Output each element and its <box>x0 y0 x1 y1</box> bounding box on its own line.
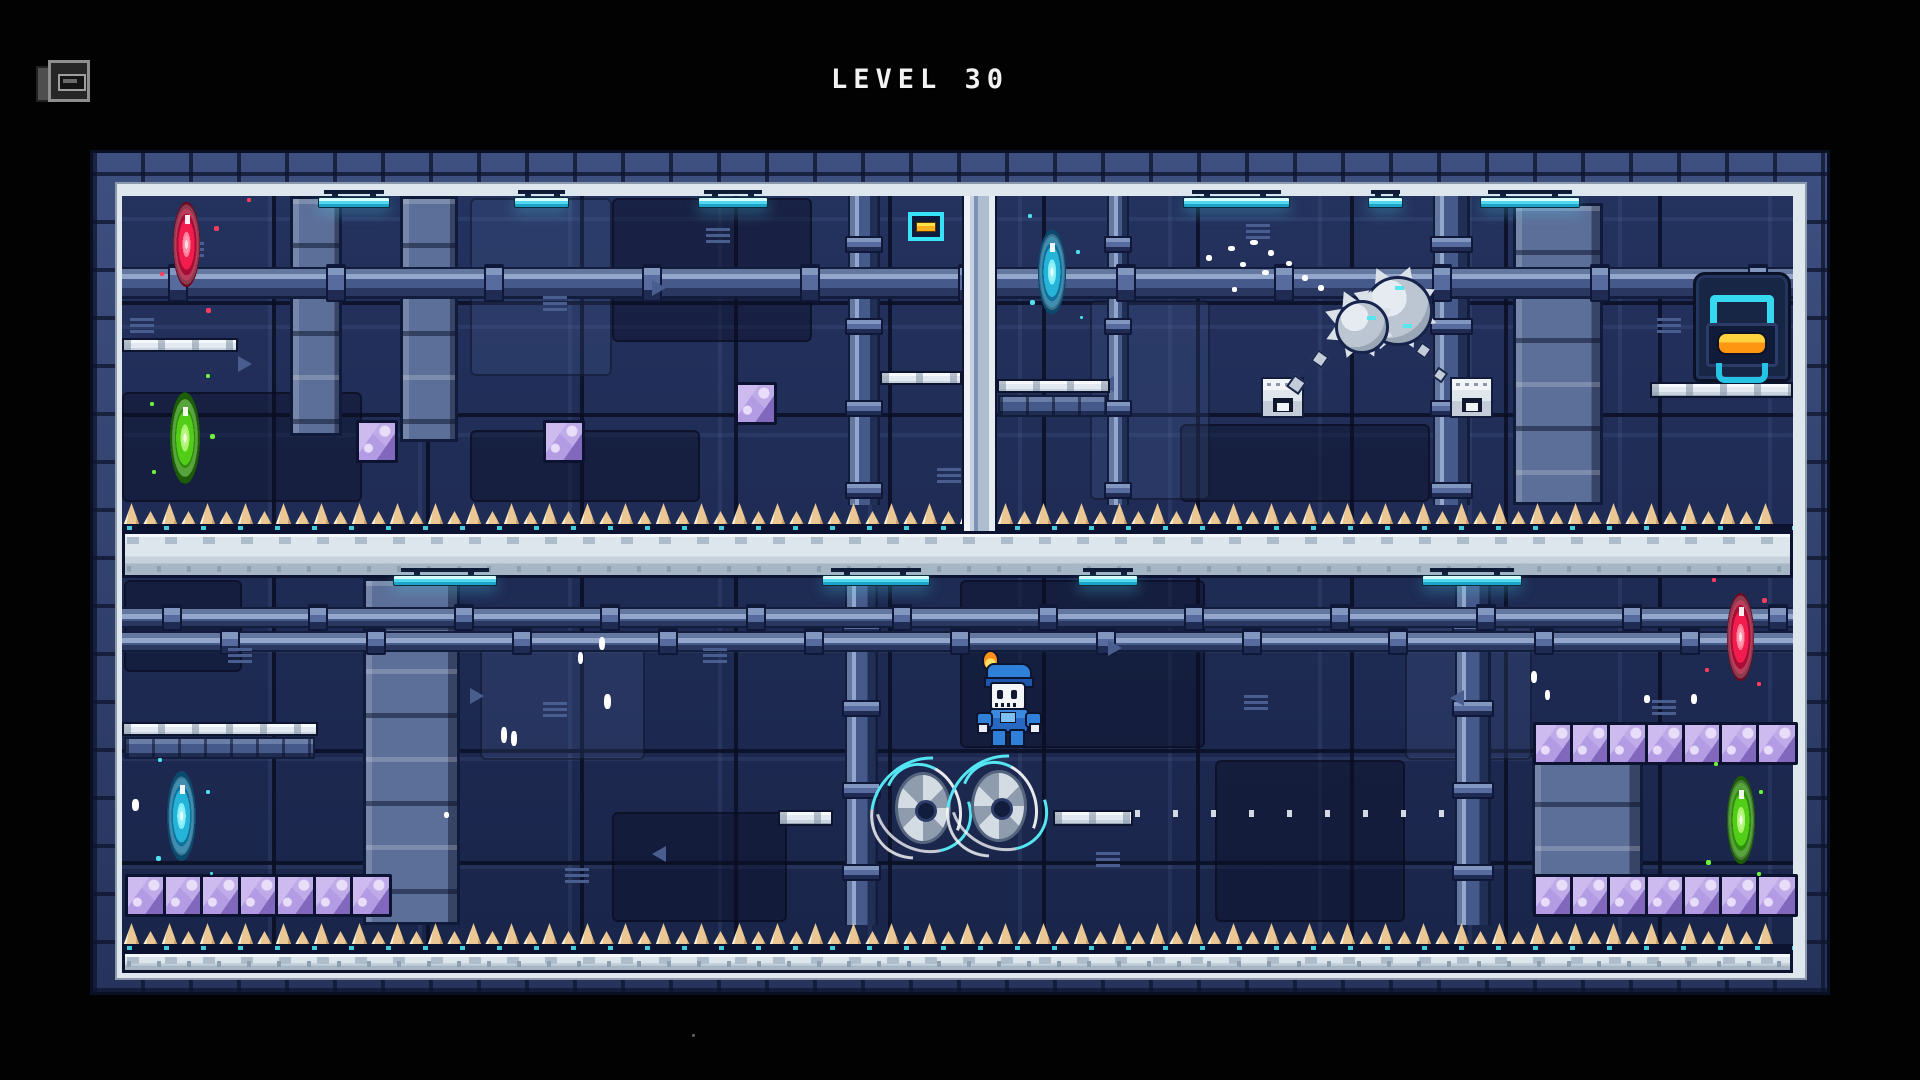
pipe-band <box>842 864 881 881</box>
lower-left-ledge <box>122 722 318 736</box>
wall-vent <box>1657 318 1681 333</box>
spark-cyan <box>1076 250 1080 254</box>
lamp-bar <box>318 197 390 208</box>
portal-cyan-lower-left <box>165 765 198 867</box>
spike-base <box>122 524 1793 531</box>
spark-cyan <box>156 856 161 861</box>
dust-particle <box>132 799 139 811</box>
player-eye <box>997 690 1003 699</box>
crystal-block <box>350 874 392 917</box>
saw-left-platform <box>778 810 833 826</box>
player-eye <box>1011 690 1017 699</box>
white-pole <box>962 196 997 531</box>
player-handr <box>1029 723 1041 734</box>
spark-green <box>1759 790 1763 794</box>
wall-vent <box>543 296 567 311</box>
crystal-block <box>1533 874 1575 917</box>
crystal-block <box>356 420 398 463</box>
crystal-block <box>1682 722 1724 765</box>
dust-particle <box>1691 694 1697 704</box>
beam-ticks <box>127 961 1788 967</box>
lamp-bar <box>822 575 930 586</box>
wall-vent <box>565 868 589 883</box>
pipe-band <box>845 236 883 253</box>
portal-red-upper-left <box>171 196 202 293</box>
spike-base <box>122 944 1793 951</box>
dust-particle <box>1240 262 1246 267</box>
spark-green <box>1757 872 1761 876</box>
lamp-bar <box>514 197 569 208</box>
dust-particle <box>604 694 611 709</box>
pipe-band <box>845 400 883 417</box>
pipe-band <box>1452 864 1494 881</box>
wall-vent <box>228 648 252 663</box>
wall-arrow <box>238 356 252 372</box>
pipe-joint <box>892 604 912 631</box>
ceiling-lamp <box>318 190 390 208</box>
divider-beam <box>122 531 1793 578</box>
spiked-ball <box>1333 276 1433 362</box>
pipe-joint <box>1330 604 1350 631</box>
dust-particle <box>1286 261 1292 266</box>
dust-particle <box>1228 246 1235 251</box>
pipe-joint <box>454 604 474 631</box>
crystal-block <box>1607 722 1649 765</box>
spike-base-dots <box>127 526 1793 530</box>
pipe-band <box>1104 482 1132 499</box>
portal-green-upper-left <box>168 386 202 490</box>
spark-green <box>1706 860 1711 865</box>
ceiling-lamp <box>1183 190 1290 208</box>
player-chest <box>1000 712 1016 723</box>
crystal-block <box>163 874 205 917</box>
spark-cyan <box>1028 214 1032 218</box>
crystal-block <box>1570 722 1612 765</box>
spark-red <box>1762 598 1767 603</box>
machine-cabinet <box>400 196 458 442</box>
pipe-band <box>842 700 881 717</box>
spark-green <box>150 402 154 406</box>
pipe-band <box>845 482 883 499</box>
spark-cyan <box>1030 300 1035 305</box>
beam-studs <box>127 537 1788 544</box>
pipe-band <box>1430 236 1473 253</box>
saw-blade-right <box>963 762 1035 850</box>
dispenser-slot-inner <box>1277 403 1289 411</box>
lower-room-floor-spikes <box>122 925 1793 951</box>
dispenser-lines <box>1456 383 1487 386</box>
pipe-band <box>1104 236 1132 253</box>
pipe-joint <box>326 264 346 302</box>
upper-room-floor-spikes <box>122 505 1793 531</box>
exit-door <box>1693 272 1791 382</box>
pipe-joint <box>1590 264 1610 302</box>
spark-cyan <box>158 758 162 762</box>
pole-right-ledge <box>997 379 1110 393</box>
wall-vent <box>1096 852 1120 867</box>
wall-panel-dark <box>1215 760 1405 922</box>
ceiling-lamp <box>698 190 768 208</box>
ceiling-lamp <box>822 568 930 586</box>
beam-ticks <box>127 566 1788 572</box>
pipe-joint <box>658 628 678 655</box>
pipe-joint <box>484 264 504 302</box>
pipe-band <box>1430 318 1473 335</box>
door-button <box>1717 332 1767 355</box>
portal-cyan-upper-middle <box>1036 224 1068 320</box>
pipe-joint <box>1184 604 1204 631</box>
upper-left-ledge <box>122 338 238 352</box>
pipe-joint <box>1768 604 1788 631</box>
debris-chunk <box>1310 349 1329 368</box>
pipe-joint <box>1476 604 1496 631</box>
wall-vent <box>543 702 567 717</box>
pipe-band <box>845 318 883 335</box>
door-top-bracket <box>1710 295 1774 324</box>
wall-panel-dark <box>470 430 700 502</box>
wall-vent <box>1246 224 1270 239</box>
wall-vent <box>130 318 154 333</box>
pipe-joint <box>162 604 182 631</box>
switch-sign <box>908 212 944 241</box>
pipe-joint <box>308 604 328 631</box>
crystal-block <box>313 874 355 917</box>
pole-left-ledge <box>880 371 962 385</box>
entities-layer <box>0 0 1920 1080</box>
player-legl <box>991 729 1007 747</box>
crystal-block <box>125 874 167 917</box>
spark-green <box>152 470 156 474</box>
spark-red <box>1712 578 1716 582</box>
wall-vent <box>703 648 727 663</box>
lamp-bar <box>1183 197 1290 208</box>
spark-green <box>210 434 215 439</box>
spark-cyan <box>210 872 213 875</box>
lamp-bar <box>393 575 497 586</box>
stray-dot <box>692 1034 695 1037</box>
dust-particle <box>511 731 517 746</box>
ball-glint <box>1367 316 1376 320</box>
ball-glint <box>1395 286 1404 290</box>
pipe-band <box>1104 318 1132 335</box>
dust-particle <box>1262 270 1269 275</box>
wall-vent <box>706 228 730 243</box>
crystal-block <box>275 874 317 917</box>
dust-particle <box>1250 240 1258 245</box>
pipe-joint <box>366 628 386 655</box>
horizontal-pipe <box>122 267 1793 299</box>
lamp-bar <box>1480 197 1580 208</box>
wall-duct <box>998 395 1107 417</box>
dispenser-slot-inner <box>1466 403 1478 411</box>
dust-particle <box>1318 285 1324 291</box>
ceiling-lamp <box>1078 568 1138 586</box>
wall-panel-dark <box>612 812 787 922</box>
pipe-joint <box>950 628 970 655</box>
spark-red <box>160 272 164 276</box>
portal-red-lower-right <box>1725 587 1756 687</box>
lamp-bar <box>1078 575 1138 586</box>
game-screen: LEVEL 30 <box>0 0 1920 1080</box>
spark-red <box>1757 682 1761 686</box>
spark-green <box>1714 762 1718 766</box>
pipe-joint <box>1534 628 1554 655</box>
machine-cabinet <box>290 196 342 436</box>
spark-red <box>1705 668 1709 672</box>
saw-motion-swirl <box>925 733 1073 879</box>
spark-cyan <box>1080 316 1083 319</box>
spark-red <box>214 226 219 231</box>
wall-duct <box>124 737 315 759</box>
ball-lobe <box>1335 300 1389 354</box>
wall-vent <box>1652 700 1676 715</box>
player-mouth <box>995 703 1019 707</box>
pipe-joint <box>1622 604 1642 631</box>
sign-button <box>916 222 936 232</box>
pipe-band <box>1104 400 1132 417</box>
crystal-block <box>1645 874 1687 917</box>
dust-particle <box>1232 287 1237 292</box>
pipe-joint <box>804 628 824 655</box>
vertical-pipe <box>1433 196 1470 505</box>
block-dispenser <box>1450 377 1493 418</box>
pipe-band <box>1452 782 1494 799</box>
dust-particle <box>599 637 605 650</box>
crystal-block <box>1533 722 1575 765</box>
dust-particle <box>1302 275 1308 281</box>
pipe-band <box>1430 482 1473 499</box>
dust-particle <box>578 652 583 664</box>
crystal-block <box>1719 874 1761 917</box>
lamp-bar <box>1422 575 1522 586</box>
pipe-joint <box>746 604 766 631</box>
pipe-joint <box>800 264 820 302</box>
machine-cabinet <box>1513 203 1603 505</box>
crystal-block <box>1570 874 1612 917</box>
player-handl <box>977 723 989 734</box>
lamp-bar <box>1368 197 1403 208</box>
crystal-block <box>543 420 585 463</box>
wall-vent <box>937 468 961 483</box>
ball-glint <box>1403 324 1412 328</box>
pipe-joint <box>600 604 620 631</box>
horizontal-pipe <box>122 607 1793 628</box>
ceiling-lamp <box>1368 190 1403 208</box>
dust-particle <box>1268 250 1274 256</box>
spark-red <box>247 198 251 202</box>
pipe-joint <box>1116 264 1136 302</box>
pipe-joint <box>1388 628 1408 655</box>
crystal-block <box>1607 874 1649 917</box>
door-ledge <box>1650 382 1793 398</box>
vertical-pipe <box>848 196 880 505</box>
pipe-joint <box>512 628 532 655</box>
wall-vent <box>1244 695 1268 710</box>
crystal-block <box>200 874 242 917</box>
spike-base-dots <box>127 946 1793 950</box>
portal-green-lower-right <box>1725 770 1757 870</box>
pipe-joint <box>1242 628 1262 655</box>
dust-particle <box>1206 255 1212 261</box>
vertical-pipe <box>1107 196 1129 505</box>
pipe-joint <box>1274 264 1294 302</box>
dust-particle <box>1644 695 1650 703</box>
ceiling-lamp <box>1480 190 1580 208</box>
dust-particle <box>444 812 449 818</box>
dust-particle <box>501 727 507 743</box>
crystal-block <box>1756 874 1798 917</box>
spark-cyan <box>206 790 210 794</box>
pipe-joint <box>1432 264 1452 302</box>
door-bottom-bracket <box>1716 363 1768 383</box>
player-legr <box>1009 729 1025 747</box>
horizontal-pipe <box>122 631 1793 652</box>
saw-right-platform <box>1053 810 1133 826</box>
crystal-block <box>238 874 280 917</box>
crystal-block <box>1645 722 1687 765</box>
dust-particle <box>1531 671 1537 683</box>
pipe-joint <box>1038 604 1058 631</box>
spark-green <box>206 374 210 378</box>
spark-red <box>206 308 211 313</box>
ceiling-lamp <box>1422 568 1522 586</box>
dust-particle <box>1545 690 1550 700</box>
floor-beam <box>122 951 1793 973</box>
crystal-block <box>1719 722 1761 765</box>
crystal-block <box>1682 874 1724 917</box>
wall-rivet-strip <box>1135 810 1457 817</box>
wall-panel-dark <box>1180 424 1430 502</box>
lamp-bar <box>698 197 768 208</box>
crystal-block <box>1756 722 1798 765</box>
crystal-block <box>735 382 777 425</box>
pipe-joint <box>1680 628 1700 655</box>
ceiling-lamp <box>514 190 569 208</box>
player-character <box>976 650 1038 745</box>
ceiling-lamp <box>393 568 497 586</box>
